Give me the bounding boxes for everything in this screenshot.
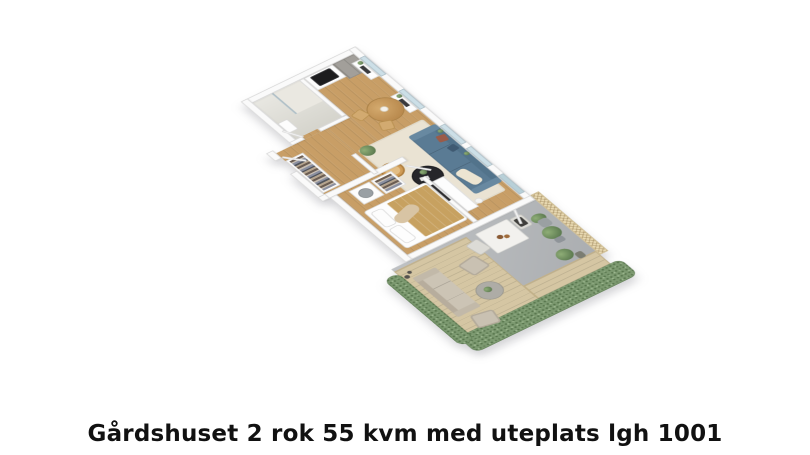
floorplan <box>194 31 661 363</box>
caption: Gårdshuset 2 rok 55 kvm med uteplats lgh… <box>0 421 810 447</box>
floorplan-stage: Gårdshuset 2 rok 55 kvm med uteplats lgh… <box>0 0 810 455</box>
